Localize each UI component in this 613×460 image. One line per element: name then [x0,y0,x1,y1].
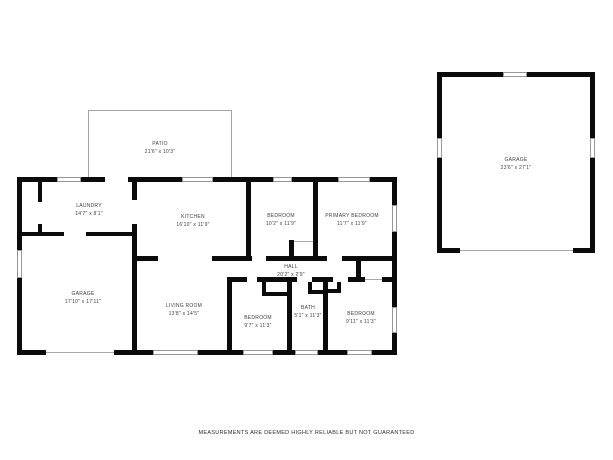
room-name: PRIMARY BEDROOM [325,212,379,220]
wall-segment [382,277,392,282]
closet-wall [308,290,323,294]
room-name: BATH [294,304,321,312]
wall-segment [227,282,232,350]
room-dimensions: 13'8" x 14'5" [166,310,202,318]
room-dimensions: 21'6" x 10'3" [145,148,176,156]
closet-wall [262,292,289,296]
window [17,250,22,278]
room-name: LAUNDRY [75,202,103,210]
room-label-bedroom-right: BEDROOM 9'11" x 11'3" [346,310,376,326]
window [182,177,213,182]
room-label-bedroom-top: BEDROOM 10'2" x 11'9" [266,212,296,228]
window [273,177,292,182]
window [153,350,198,355]
closet-wall [326,289,341,293]
room-name: GARAGE [65,290,101,298]
patio-door-opening [105,177,128,182]
closet-wall [356,261,361,282]
garage-door-line [460,250,573,251]
room-name: BEDROOM [244,314,272,322]
room-name: LIVING ROOM [166,302,202,310]
room-label-bedroom-left: BEDROOM 9'7" x 11'3" [244,314,272,330]
room-dimensions: 5'1" x 11'3" [294,312,321,320]
wall-segment [342,256,392,261]
floor-plan-canvas: PATIO 21'6" x 10'3" LAUNDRY 14'7" x 8'1"… [0,0,613,460]
window [347,350,372,355]
wall-segment [132,182,137,200]
wall-segment [86,232,137,236]
room-label-hall: HALL 20'2" x 2'9" [277,263,305,279]
window [338,177,370,182]
room-label-garage-attached: GARAGE 17'10" x 17'11" [65,290,101,306]
main-house-outline [17,177,397,355]
wall-segment [38,182,42,202]
window [57,177,81,182]
room-dimensions: 16'10" x 11'9" [176,221,209,229]
room-name: BEDROOM [266,212,296,220]
room-name: GARAGE [501,156,532,164]
window [503,72,527,77]
room-name: PATIO [145,140,176,148]
closet-wall [289,240,294,256]
garage-door-line [46,352,114,353]
room-label-garage-detached: GARAGE 23'6" x 27'1" [501,156,532,172]
room-dimensions: 14'7" x 8'1" [75,210,103,218]
closet-door-line [294,241,313,242]
room-dimensions: 11'7" x 11'9" [325,220,379,228]
room-dimensions: 20'2" x 2'9" [277,271,305,279]
window [590,138,595,158]
room-name: HALL [277,263,305,271]
window [295,350,318,355]
room-dimensions: 23'6" x 27'1" [501,164,532,172]
room-name: KITCHEN [176,213,209,221]
window [392,205,397,232]
room-label-primary-bedroom: PRIMARY BEDROOM 11'7" x 11'9" [325,212,379,228]
wall-segment [132,224,137,350]
room-name: BEDROOM [346,310,376,318]
wall-segment [246,182,251,261]
room-dimensions: 17'10" x 17'11" [65,298,101,306]
disclaimer-text: MEASUREMENTS ARE DEEMED HIGHLY RELIABLE … [0,430,613,436]
wall-segment [22,232,64,236]
room-dimensions: 10'2" x 11'9" [266,220,296,228]
room-dimensions: 9'7" x 11'3" [244,322,272,330]
room-dimensions: 9'11" x 11'3" [346,318,376,326]
room-label-laundry: LAUNDRY 14'7" x 8'1" [75,202,103,218]
wall-segment [137,256,158,261]
window [392,307,397,333]
room-label-bath: BATH 5'1" x 11'3" [294,304,321,320]
window [243,350,273,355]
window [437,138,442,158]
room-label-living-room: LIVING ROOM 13'8" x 14'5" [166,302,202,318]
closet-door-line [365,279,382,280]
room-label-kitchen: KITCHEN 16'10" x 11'9" [176,213,209,229]
room-label-patio: PATIO 21'6" x 10'3" [145,140,176,156]
wall-segment [313,182,318,261]
